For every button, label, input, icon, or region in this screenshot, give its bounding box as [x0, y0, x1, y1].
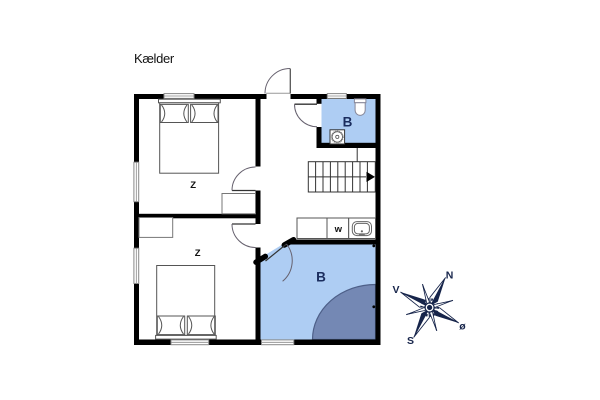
svg-text:ø: ø [459, 320, 466, 332]
svg-text:B: B [316, 270, 326, 285]
svg-text:B: B [343, 115, 353, 130]
svg-text:w: w [334, 224, 343, 235]
svg-text:S: S [407, 335, 414, 347]
svg-text:Z: Z [190, 180, 196, 191]
svg-text:N: N [446, 269, 454, 281]
svg-text:Z: Z [195, 248, 201, 259]
svg-text:V: V [392, 284, 399, 296]
svg-text:Kælder: Kælder [134, 51, 175, 66]
